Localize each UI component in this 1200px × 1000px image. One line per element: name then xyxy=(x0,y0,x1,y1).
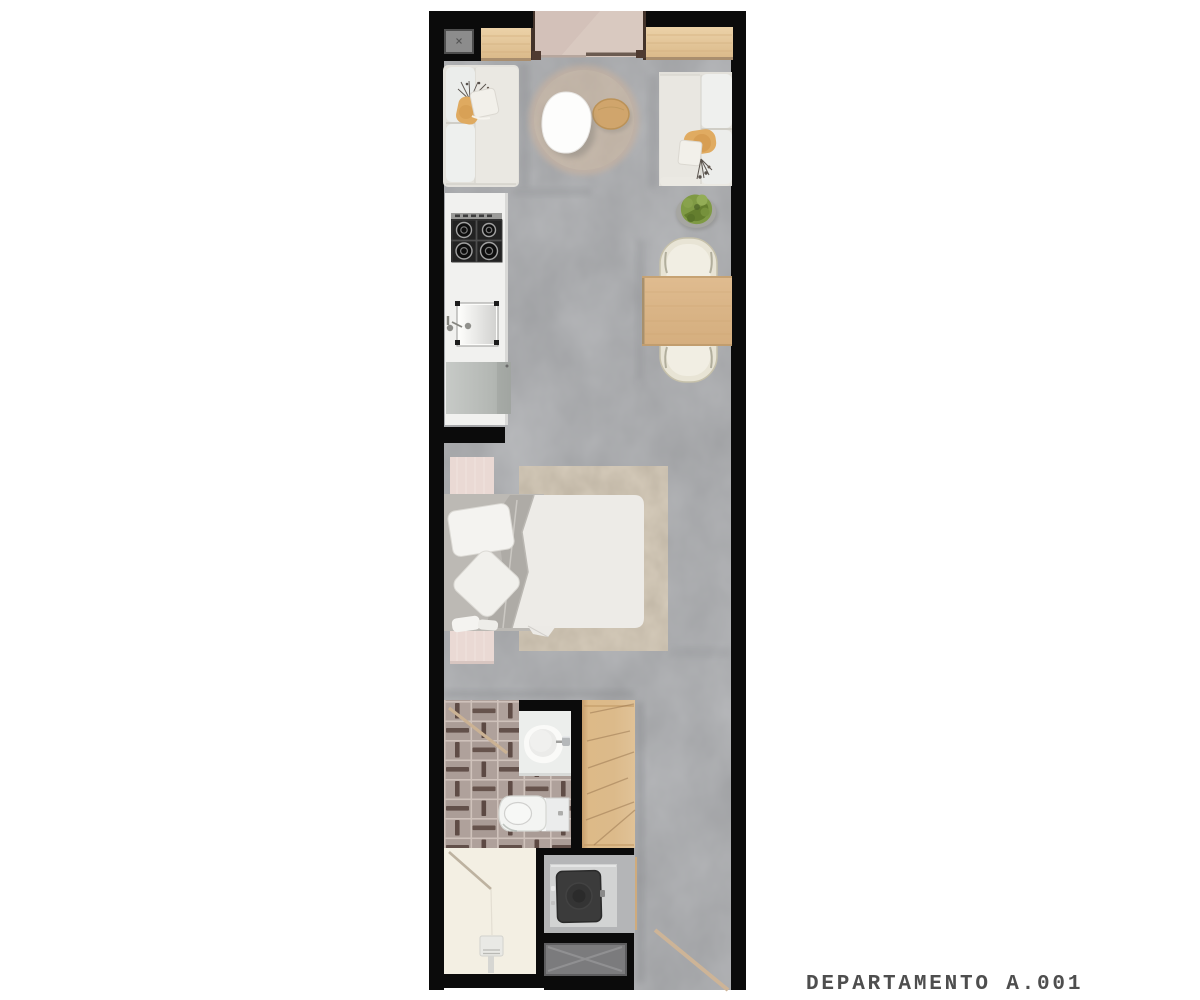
svg-text:DEPARTAMENTO A.001: DEPARTAMENTO A.001 xyxy=(806,973,1083,996)
